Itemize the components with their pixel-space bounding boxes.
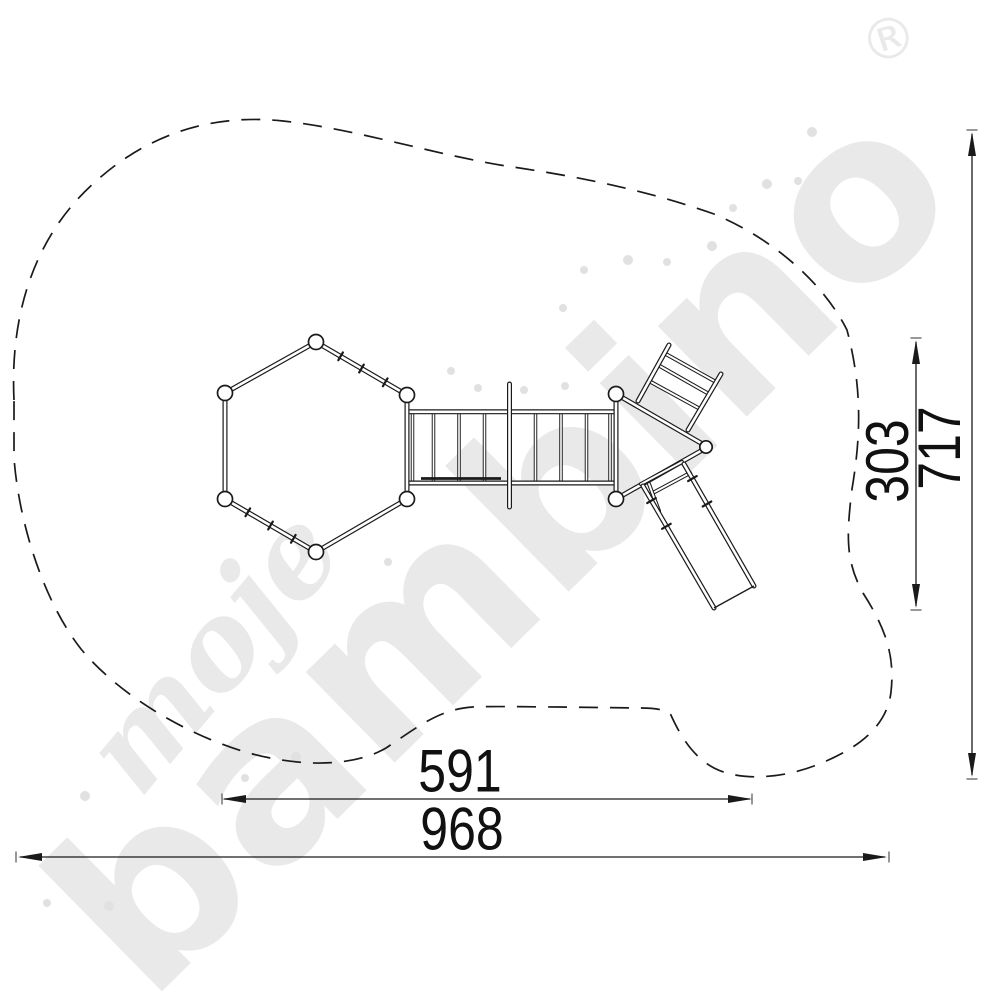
watermark-dot (474, 384, 482, 392)
arrow-down-icon (968, 753, 976, 777)
watermark-dot (520, 386, 528, 394)
structure-post (609, 492, 624, 507)
watermark-dot (43, 899, 51, 907)
watermark-dot (707, 241, 717, 251)
structure-post (309, 545, 324, 560)
structure-post (309, 335, 324, 350)
arrow-down-icon (912, 584, 920, 608)
structure-post (609, 387, 624, 402)
registered-trademark-mark: ® (852, 0, 925, 79)
dimension-label-zone-width: 968 (420, 795, 503, 862)
watermark-dot (580, 266, 588, 274)
watermark-dot (807, 127, 817, 137)
hexagon-edge (225, 342, 316, 393)
watermark-dot (663, 258, 671, 266)
watermark-dot (384, 558, 392, 566)
arrow-up-icon (912, 340, 920, 364)
dimension-label-zone-height: 717 (906, 406, 973, 489)
structure-post (700, 441, 712, 453)
arrow-up-icon (968, 132, 976, 156)
watermark-dot (104, 901, 114, 911)
watermark-dot (729, 204, 737, 212)
watermark-dot (291, 752, 301, 762)
arrow-right-icon (728, 795, 752, 803)
structure-post (400, 388, 415, 403)
arrow-right-icon (863, 853, 887, 861)
structure-post (218, 492, 233, 507)
watermark-dot (762, 179, 772, 189)
watermark-dot (561, 382, 569, 390)
drawing-page: moje bambino ® (0, 0, 1000, 1000)
playground-technical-drawing: moje bambino ® (0, 0, 1000, 1000)
watermark-dot (80, 791, 90, 801)
slide-end-bar (714, 586, 754, 608)
structure-post (400, 492, 415, 507)
watermark-dot (241, 774, 249, 782)
watermark-dot (447, 367, 455, 375)
structure-post (218, 386, 233, 401)
watermark-dot (794, 177, 802, 185)
watermark-dot (559, 304, 567, 312)
watermark-dot (623, 255, 633, 265)
